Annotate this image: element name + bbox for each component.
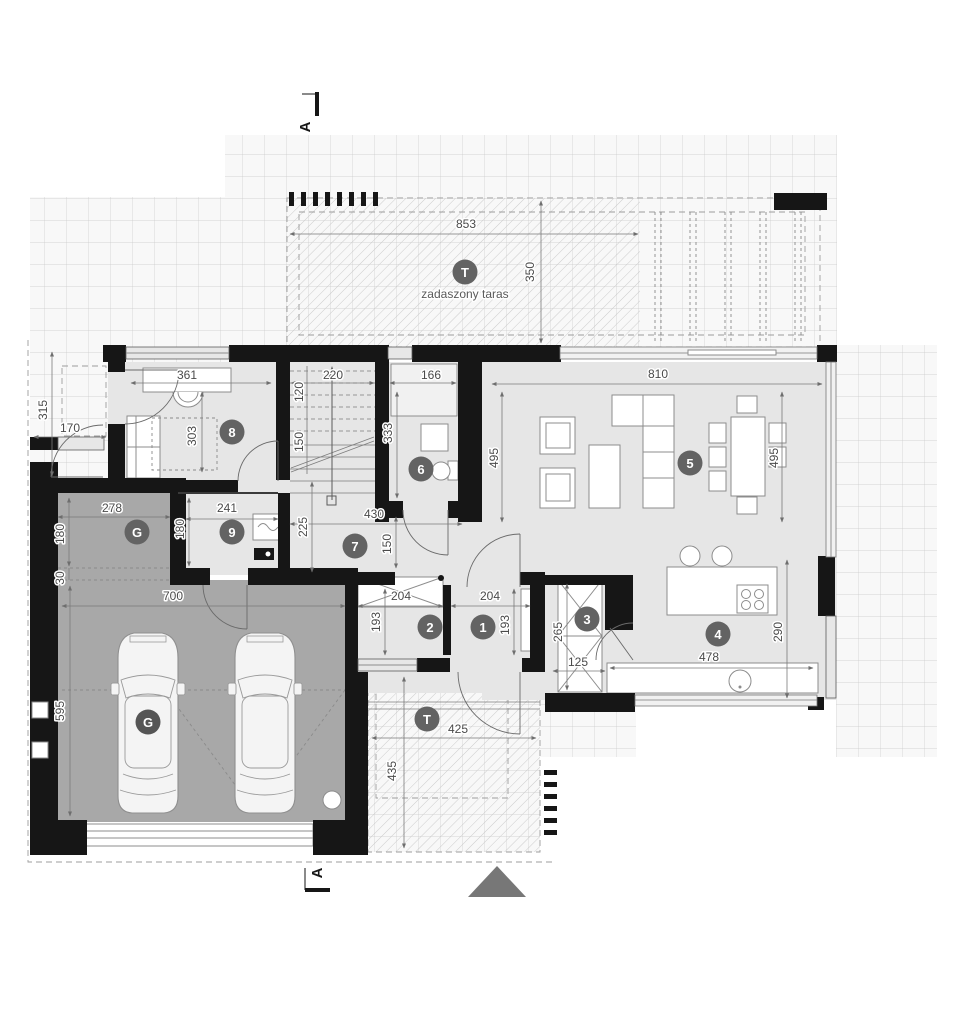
dim-r6-d: 333 bbox=[381, 423, 395, 443]
chair bbox=[709, 471, 726, 491]
chair bbox=[737, 497, 757, 514]
dim-stairs-w: 220 bbox=[323, 368, 343, 382]
svg-text:4: 4 bbox=[714, 627, 722, 642]
dim-living-d-left: 495 bbox=[487, 448, 501, 468]
svg-text:2: 2 bbox=[426, 620, 433, 635]
badge-room-7: 7 bbox=[343, 534, 368, 559]
badge-room-8: 8 bbox=[220, 420, 245, 445]
dim-garage-d: 595 bbox=[53, 701, 67, 721]
badge-room-3: 3 bbox=[575, 607, 600, 632]
badge-room-2: 2 bbox=[418, 615, 443, 640]
dim-r7-d: 225 bbox=[296, 517, 310, 537]
section-letter-top: A bbox=[297, 121, 314, 132]
svg-text:T: T bbox=[461, 265, 469, 280]
dim-r6-w: 166 bbox=[421, 368, 441, 382]
toilet-bowl bbox=[432, 462, 450, 480]
dim-r7-w: 430 bbox=[364, 507, 384, 521]
dim-r9-w: 241 bbox=[217, 501, 237, 515]
dim-r1-w: 204 bbox=[480, 589, 500, 603]
dim-utility-step: 30 bbox=[53, 571, 67, 585]
chair bbox=[709, 423, 726, 443]
dim-terrace-top-d: 350 bbox=[523, 262, 537, 282]
dim-r8-d: 303 bbox=[185, 426, 199, 446]
bar-stool bbox=[680, 546, 700, 566]
pergola-beam bbox=[774, 193, 827, 210]
boiler bbox=[253, 514, 279, 540]
badge-room-4: 4 bbox=[706, 622, 731, 647]
garage-door bbox=[85, 824, 313, 846]
dim-porch-d: 315 bbox=[36, 400, 50, 420]
badge-room-6: 6 bbox=[409, 457, 434, 482]
chair bbox=[769, 423, 786, 443]
svg-text:1: 1 bbox=[479, 620, 486, 635]
coffee-table bbox=[589, 445, 620, 508]
sliding-door bbox=[688, 350, 776, 355]
kitchen-island bbox=[667, 567, 777, 615]
wall-niche bbox=[32, 702, 48, 718]
badge-terrace-top: T bbox=[453, 260, 478, 285]
roof-edge-dashes-vertical bbox=[544, 770, 557, 835]
svg-text:9: 9 bbox=[228, 525, 235, 540]
washbasin bbox=[421, 424, 448, 451]
device bbox=[254, 548, 274, 560]
dim-r4-w: 478 bbox=[699, 650, 719, 664]
svg-text:6: 6 bbox=[417, 462, 424, 477]
dim-garage-w: 700 bbox=[163, 589, 183, 603]
badge-utility: G bbox=[125, 520, 150, 545]
wall-niche bbox=[32, 742, 48, 758]
kitchen-counter bbox=[607, 663, 818, 693]
dim-stairs-d1: 120 bbox=[292, 382, 306, 402]
dim-r4-d: 290 bbox=[771, 622, 785, 642]
garage-floor bbox=[55, 580, 345, 822]
dim-stairs-d2: 150 bbox=[292, 432, 306, 452]
dim-utility-w: 278 bbox=[102, 501, 122, 515]
svg-text:7: 7 bbox=[351, 539, 358, 554]
floor-plan-svg: 853 350 810 495 495 361 303 220 120 150 … bbox=[0, 0, 968, 1024]
dim-r9-d: 180 bbox=[173, 519, 187, 539]
svg-text:3: 3 bbox=[583, 612, 590, 627]
badge-room-9: 9 bbox=[220, 520, 245, 545]
dim-living-d-right: 495 bbox=[767, 448, 781, 468]
dim-terrace-bottom-d: 435 bbox=[385, 761, 399, 781]
chair bbox=[737, 396, 757, 413]
floor-drain bbox=[323, 791, 341, 809]
svg-text:G: G bbox=[143, 715, 153, 730]
north-arrow-icon bbox=[468, 866, 526, 897]
dim-r1-d: 193 bbox=[498, 615, 512, 635]
dim-r8-w: 361 bbox=[177, 368, 197, 382]
dim-r3-w: 125 bbox=[568, 655, 588, 669]
terrace-label: zadaszony taras bbox=[421, 287, 508, 301]
chair bbox=[709, 447, 726, 467]
badge-terrace-bottom: T bbox=[415, 707, 440, 732]
section-marker-top: A bbox=[297, 92, 317, 132]
dim-r3-d: 265 bbox=[551, 622, 565, 642]
dim-living-w: 810 bbox=[648, 367, 668, 381]
dim-utility-d: 180 bbox=[53, 524, 67, 544]
dim-r2-d: 193 bbox=[369, 612, 383, 632]
bar-stool bbox=[712, 546, 732, 566]
svg-text:8: 8 bbox=[228, 425, 235, 440]
car bbox=[228, 633, 302, 813]
svg-text:5: 5 bbox=[686, 456, 693, 471]
svg-text:T: T bbox=[423, 712, 431, 727]
dim-terrace-bottom-w: 425 bbox=[448, 722, 468, 736]
dim-porch-w: 170 bbox=[60, 421, 80, 435]
badge-room-1: 1 bbox=[471, 615, 496, 640]
dining-table bbox=[731, 417, 765, 496]
svg-text:G: G bbox=[132, 525, 142, 540]
dim-r7-door: 150 bbox=[380, 534, 394, 554]
section-marker-bottom: A bbox=[305, 867, 330, 890]
section-letter-bottom: A bbox=[309, 867, 326, 878]
badge-garage: G bbox=[136, 710, 161, 735]
floor-plan-canvas: 853 350 810 495 495 361 303 220 120 150 … bbox=[0, 0, 968, 1024]
dim-terrace-top-w: 853 bbox=[456, 217, 476, 231]
dim-r2-w: 204 bbox=[391, 589, 411, 603]
badge-room-5: 5 bbox=[678, 451, 703, 476]
